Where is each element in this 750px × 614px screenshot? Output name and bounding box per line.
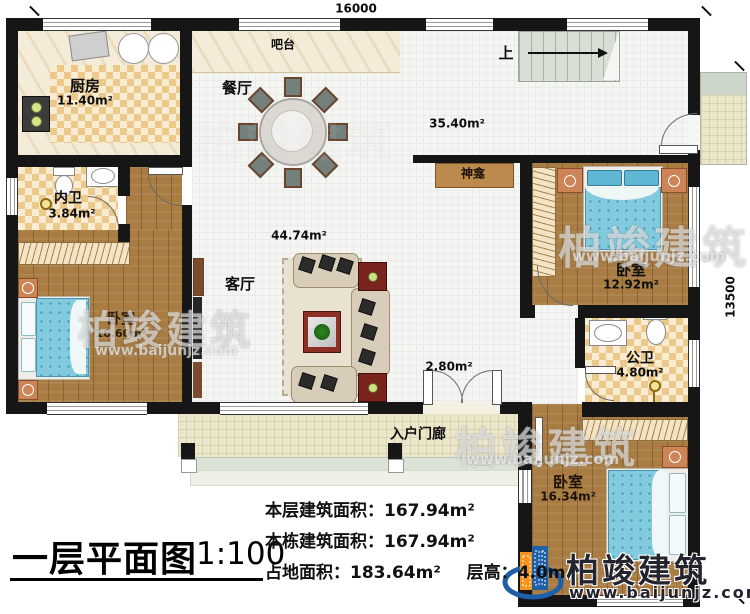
kitchen-sink <box>68 30 109 61</box>
stat-line-2: 本栋建筑面积：167.94m² <box>265 527 475 552</box>
label-living: 客厅 <box>225 276 255 293</box>
bed-left-pillow <box>21 302 36 336</box>
stat-label: 占地面积： <box>265 563 350 583</box>
title-underline <box>10 578 263 581</box>
bar-counter <box>192 31 400 73</box>
plan-title: 一层平面图 <box>12 530 197 582</box>
window-bottom-bedroomleft <box>47 402 147 415</box>
dimension-height: 13500 <box>724 276 737 318</box>
watermark-brand: 柏竣建筑 <box>558 212 750 276</box>
wall-innerbath-right-a <box>118 167 130 196</box>
stove-burner-2 <box>31 116 42 127</box>
stove-burner-1 <box>31 102 42 113</box>
kitchen-pot-1 <box>118 33 149 64</box>
watermark-url: www.baijunjz.com <box>466 450 619 468</box>
label-kitchen: 厨房 <box>70 78 100 95</box>
window-right-publicbath <box>688 340 700 387</box>
porch-column-base <box>181 459 197 473</box>
drain-stem <box>653 390 655 402</box>
wall-bedroomright-bottom-a <box>520 305 535 318</box>
side-porch <box>700 72 747 165</box>
label-innerbath: 内卫 <box>54 191 82 206</box>
corridor-floor <box>520 305 578 413</box>
label-hall-area: 35.40m² <box>429 117 485 130</box>
toilet-bowl-icon <box>646 319 666 345</box>
floor-plan-canvas: 16000 13500 吧台 厨房 11.40m² 餐厅 35.40m² 上 神… <box>0 0 750 614</box>
nightstand <box>18 380 38 400</box>
bed-left-pillow <box>21 338 36 372</box>
watermark-brand: 柏竣建筑 <box>195 105 395 171</box>
side-table-top <box>358 262 387 291</box>
porch-column <box>181 443 195 459</box>
sink-basin-icon <box>91 168 115 184</box>
dimension-width: 16000 <box>335 2 377 15</box>
label-innerbath-area: 3.84m² <box>48 207 95 220</box>
dim-tick <box>29 6 40 17</box>
label-publicbath: 公卫 <box>626 351 654 366</box>
stat-value: 167.94m² <box>384 532 475 552</box>
staircase-arrow-line <box>528 52 598 54</box>
label-bedroombottom-area: 16.34m² <box>540 490 596 503</box>
tv-cabinet-lower <box>193 362 202 398</box>
side-porch-step <box>701 73 746 95</box>
wall-bedroomright-bottom-b <box>578 305 688 318</box>
nightstand <box>661 168 687 193</box>
entry-door-leaf-right <box>492 370 502 405</box>
label-porch: 入户门廊 <box>390 427 446 442</box>
kitchen-stove <box>22 96 50 132</box>
side-porch-tile <box>701 95 746 164</box>
stat-value: 183.64m² <box>350 563 441 583</box>
window-top-hall <box>567 18 648 31</box>
staircase-arrowhead <box>598 48 608 58</box>
wall-left <box>6 18 18 414</box>
label-living-area: 44.74m² <box>271 229 327 242</box>
label-bar: 吧台 <box>271 38 295 51</box>
bed-right-pillow <box>587 170 622 186</box>
dining-chair <box>284 77 302 97</box>
sink-oval-icon <box>594 324 622 342</box>
side-table-bottom <box>358 373 387 402</box>
wall-hall-bedroomright <box>413 155 700 163</box>
wall-innerbath-right-b <box>118 224 130 242</box>
window-left-innerbath <box>6 178 18 215</box>
stat-label: 本层建筑面积： <box>265 501 384 521</box>
wall-kitchen-bottom <box>18 155 192 167</box>
watermark-url: www.baijunjz.com <box>572 247 725 265</box>
kitchen-pot-2 <box>148 33 179 64</box>
stat-label: 层高： <box>467 563 518 583</box>
stat-line-3: 占地面积：183.64m² 层高：4.0m <box>265 558 565 583</box>
wall-bedroomright-left <box>520 163 532 310</box>
label-shrine: 神龛 <box>461 167 485 180</box>
tv-cabinet-upper <box>193 258 204 296</box>
bed-bottom-pillow <box>669 473 686 513</box>
window-top-stairs <box>426 18 493 31</box>
stat-value: 4.0m <box>518 563 566 583</box>
dining-chair <box>284 168 302 188</box>
stat-line-1: 本层建筑面积：167.94m² <box>265 496 475 521</box>
porch-column-base <box>388 459 404 473</box>
label-bedroombottom: 卧室 <box>553 474 583 491</box>
wall-publicbath-left <box>575 318 585 368</box>
label-publicbath-area: 4.80m² <box>616 366 663 379</box>
watermark-url: www.baijunjz.com <box>95 343 238 359</box>
nightstand <box>18 278 38 298</box>
entry-opening <box>423 402 500 414</box>
coffee-table-plant <box>314 324 330 340</box>
dim-tick <box>701 6 712 17</box>
label-corridor-area: 2.80m² <box>425 360 472 373</box>
nightstand <box>557 168 583 193</box>
window-top-kitchen <box>43 18 151 31</box>
wardrobe-right <box>532 167 556 277</box>
brand-logo-url: www.baijunjz.com <box>569 583 750 602</box>
label-dining: 餐厅 <box>222 80 252 97</box>
side-door-leaf <box>659 145 698 154</box>
porch-column <box>388 443 402 459</box>
window-top-dining <box>239 18 340 31</box>
stat-value: 167.94m² <box>384 501 475 521</box>
nightstand <box>662 446 688 468</box>
label-kitchen-area: 11.40m² <box>57 94 113 107</box>
label-bedroomright-area: 12.92m² <box>603 278 659 291</box>
wall-kitchen-right <box>180 31 192 163</box>
floor-drain-icon <box>649 380 661 392</box>
stat-label: 本栋建筑面积： <box>265 532 384 552</box>
bed-right-pillow <box>624 170 659 186</box>
label-stairs-up: 上 <box>498 45 513 62</box>
dim-tick <box>734 61 745 72</box>
wardrobe-left <box>18 242 130 265</box>
title-block: 一层平面图 1:100 本层建筑面积：167.94m² 本栋建筑面积：167.9… <box>0 490 520 590</box>
window-bottom-living <box>220 402 368 415</box>
coffee-table <box>303 311 341 353</box>
